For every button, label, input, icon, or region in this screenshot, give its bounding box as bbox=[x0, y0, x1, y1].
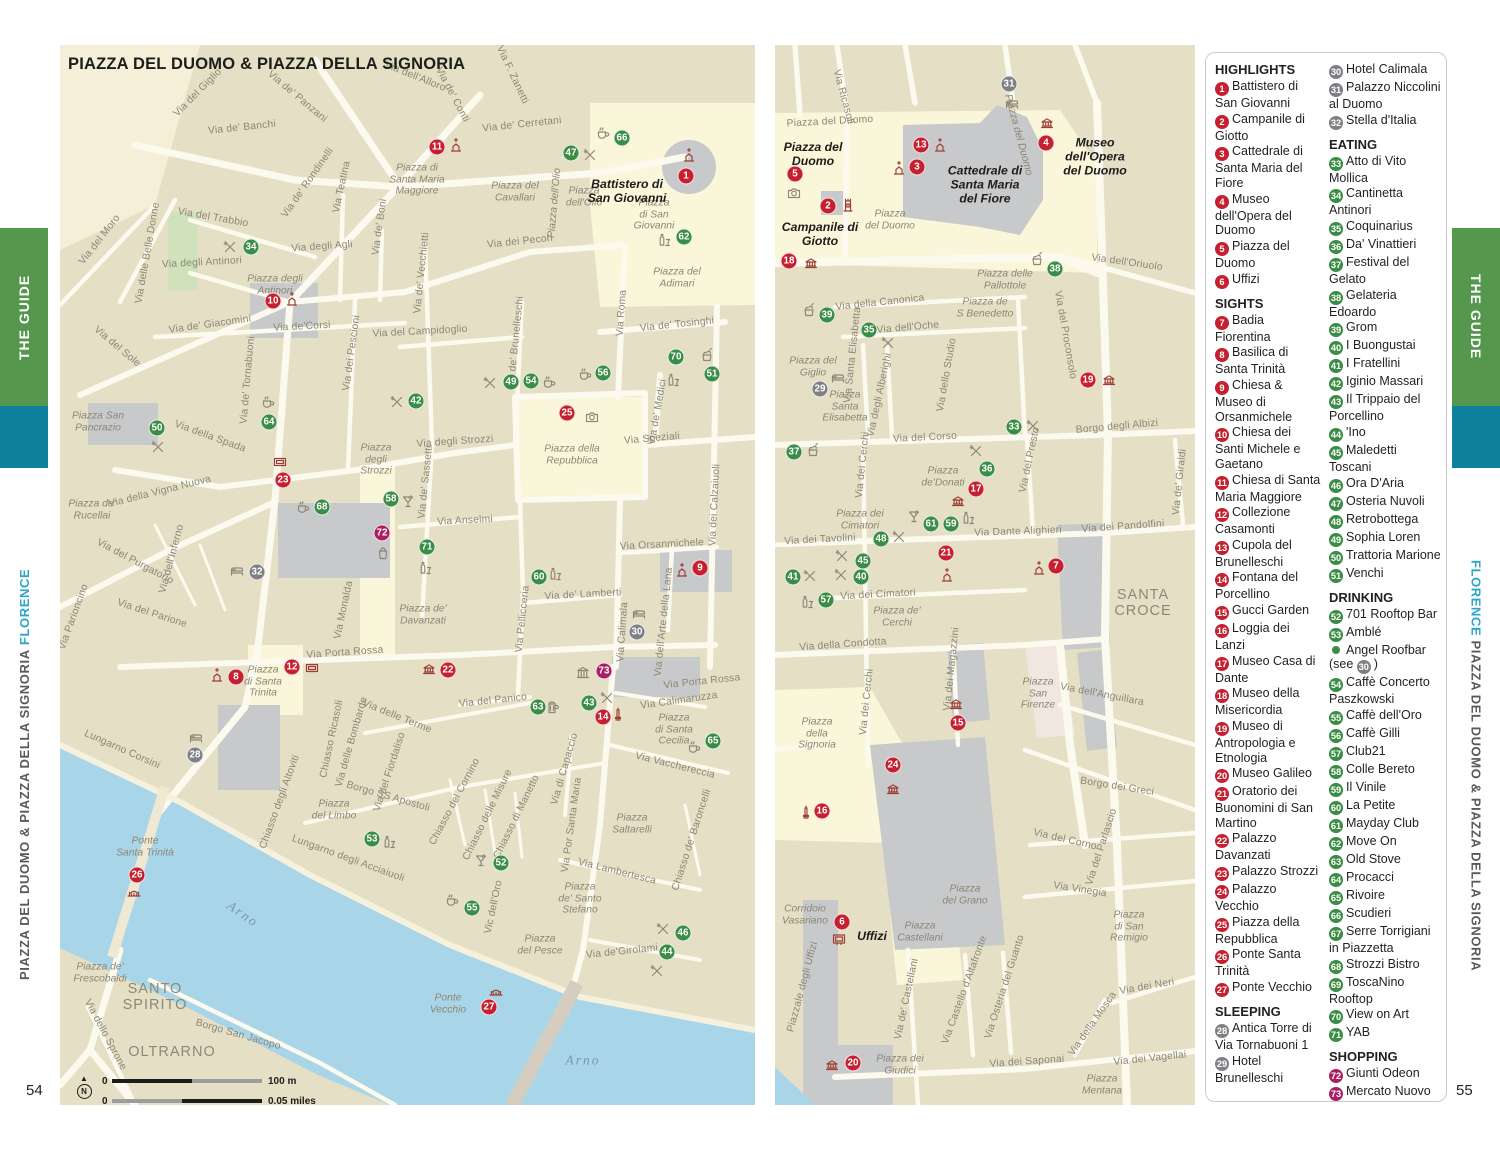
map-marker-46: 46 bbox=[675, 925, 692, 942]
piazza-label: Piazza Castellani bbox=[897, 920, 942, 943]
cafe-icon bbox=[686, 739, 702, 755]
map-marker-31: 31 bbox=[1001, 76, 1018, 93]
restaurant-icon bbox=[833, 567, 849, 583]
legend-badge-12: 12 bbox=[1215, 508, 1229, 522]
map-legend-panel: HIGHLIGHTS1Battistero di San Giovanni2Ca… bbox=[1205, 52, 1447, 1102]
piazza-label: Piazza dei Giudici bbox=[876, 1053, 924, 1076]
piazza-label: Piazza de' Davanzati bbox=[399, 603, 446, 626]
legend-item: 9Chiesa & Museo di Orsanmichele bbox=[1215, 378, 1321, 424]
legend-item: 22Palazzo Davanzati bbox=[1215, 831, 1321, 863]
legend-item: 55Caffè dell'Oro bbox=[1329, 708, 1441, 725]
legend-item: 3Cattedrale di Santa Maria del Fiore bbox=[1215, 144, 1321, 190]
museum-icon bbox=[1101, 371, 1117, 387]
map-marker-56: 56 bbox=[595, 365, 612, 382]
legend-badge-62: 62 bbox=[1329, 837, 1343, 851]
cafe-icon bbox=[541, 374, 557, 390]
map-marker-4: 4 bbox=[1038, 135, 1055, 152]
legend-badge-47: 47 bbox=[1329, 497, 1343, 511]
legend-item: 53Amblé bbox=[1329, 625, 1441, 642]
map-marker-73: 73 bbox=[596, 663, 613, 680]
bed-icon bbox=[1004, 95, 1020, 111]
piazza-label: Piazza delle Pallottole bbox=[977, 268, 1033, 291]
poi-label: Cattedrale di Santa Maria del Fiore bbox=[948, 164, 1022, 205]
legend-badge-15: 15 bbox=[1215, 606, 1229, 620]
legend-dot bbox=[1332, 646, 1340, 654]
legend-badge-39: 39 bbox=[1329, 323, 1343, 337]
map-marker-57: 57 bbox=[818, 592, 835, 609]
river-label: Arno bbox=[566, 1052, 601, 1067]
legend-item: 63Old Stove bbox=[1329, 852, 1441, 869]
legend-item: 46Ora D'Aria bbox=[1329, 476, 1441, 493]
piazza-label: Piazza de'Donati bbox=[921, 465, 964, 488]
restaurant-icon bbox=[222, 239, 238, 255]
bed-icon bbox=[229, 562, 245, 578]
legend-section-title: DRINKING bbox=[1329, 590, 1441, 605]
right-caption-city: FLORENCE bbox=[1469, 560, 1484, 636]
piazza-label: Ponte Vecchio bbox=[430, 992, 466, 1015]
map-marker-48: 48 bbox=[873, 531, 890, 548]
legend-badge-43: 43 bbox=[1329, 395, 1343, 409]
map-marker-22: 22 bbox=[440, 662, 457, 679]
guidebook-map-spread: THE GUIDE PIAZZA DEL DUOMO & PIAZZA DELL… bbox=[0, 0, 1500, 1154]
map-marker-71: 71 bbox=[419, 539, 436, 556]
church-icon bbox=[891, 160, 907, 176]
legend-item: 10Chiesa dei Santi Michele e Gaetano bbox=[1215, 425, 1321, 471]
drink-icon bbox=[417, 560, 433, 576]
beer-icon bbox=[545, 699, 561, 715]
map-marker-38: 38 bbox=[1047, 261, 1064, 278]
legend-item: 57Club21 bbox=[1329, 744, 1441, 761]
legend-item: 26Ponte Santa Trinità bbox=[1215, 947, 1321, 979]
map-marker-27: 27 bbox=[481, 999, 498, 1016]
legend-item: 45Maledetti Toscani bbox=[1329, 443, 1441, 475]
legend-badge-68: 68 bbox=[1329, 960, 1343, 974]
right-guide-label: THE GUIDE bbox=[1452, 228, 1500, 406]
legend-badge-64: 64 bbox=[1329, 873, 1343, 887]
legend-section: 30Hotel Calimala31Palazzo Niccolini al D… bbox=[1329, 62, 1441, 130]
map-marker-5: 5 bbox=[787, 166, 804, 183]
legend-badge-58: 58 bbox=[1329, 765, 1343, 779]
legend-section-sleeping: SLEEPING28Antica Torre di Via Tornabuoni… bbox=[1215, 1004, 1321, 1085]
legend-item: 68Strozzi Bistro bbox=[1329, 957, 1441, 974]
map-marker-64: 64 bbox=[261, 414, 278, 431]
legend-badge-1: 1 bbox=[1215, 82, 1229, 96]
legend-badge-32: 32 bbox=[1329, 116, 1343, 130]
gelato-icon bbox=[805, 442, 821, 458]
museum-icon bbox=[950, 492, 966, 508]
map-marker-61: 61 bbox=[923, 516, 940, 533]
legend-item: 52701 Rooftop Bar bbox=[1329, 607, 1441, 624]
legend-item: 66Scudieri bbox=[1329, 906, 1441, 923]
legend-item: 67Serre Torrigiani in Piazzetta bbox=[1329, 924, 1441, 956]
poi-label: Piazza del Duomo bbox=[784, 141, 843, 169]
legend-item: 58Colle Bereto bbox=[1329, 762, 1441, 779]
map-marker-25: 25 bbox=[559, 405, 576, 422]
map-marker-45: 45 bbox=[855, 553, 872, 570]
legend-item: 65Rivoire bbox=[1329, 888, 1441, 905]
legend-item: 34Cantinetta Antinori bbox=[1329, 186, 1441, 218]
legend-item: 70View on Art bbox=[1329, 1007, 1441, 1024]
bed-icon bbox=[631, 605, 647, 621]
legend-item: 7Badia Fiorentina bbox=[1215, 313, 1321, 345]
legend-badge-4: 4 bbox=[1215, 195, 1229, 209]
map-sheet-title: PIAZZA DEL DUOMO & PIAZZA DELLA SIGNORIA bbox=[68, 55, 465, 74]
legend-badge-7: 7 bbox=[1215, 316, 1229, 330]
piazza-label: Piazza de' Frescobaldi bbox=[73, 961, 126, 984]
piazza-label: Piazza del Pesce bbox=[517, 933, 562, 956]
legend-item: 72Giunti Odeon bbox=[1329, 1066, 1441, 1083]
legend-item: 35Coquinarius bbox=[1329, 219, 1441, 236]
legend-section-drinking: DRINKING52701 Rooftop Bar53AmbléAngel Ro… bbox=[1329, 590, 1441, 1043]
restaurant-icon bbox=[802, 568, 818, 584]
legend-item: 28Antica Torre di Via Tornabuoni 1 bbox=[1215, 1021, 1321, 1053]
legend-item: 54Caffè Concerto Paszkowski bbox=[1329, 675, 1441, 707]
legend-badge-11: 11 bbox=[1215, 476, 1229, 490]
legend-item: Angel Roofbar (see 30) bbox=[1329, 643, 1441, 675]
legend-item: 16Loggia dei Lanzi bbox=[1215, 621, 1321, 653]
restaurant-icon bbox=[389, 394, 405, 410]
legend-badge-9: 9 bbox=[1215, 381, 1229, 395]
map-marker-29: 29 bbox=[812, 381, 829, 398]
map-marker-12: 12 bbox=[284, 659, 301, 676]
church-icon bbox=[932, 137, 948, 153]
legend-badge-25: 25 bbox=[1215, 918, 1229, 932]
legend-badge-70: 70 bbox=[1329, 1010, 1343, 1024]
piazza-label: Piazza del Limbo bbox=[312, 798, 357, 821]
legend-badge-41: 41 bbox=[1329, 359, 1343, 373]
poi-label: Uffizi bbox=[857, 930, 887, 944]
left-caption-city: FLORENCE bbox=[17, 569, 32, 645]
map-marker-62: 62 bbox=[676, 229, 693, 246]
piazza-label: Piazza del Adimari bbox=[653, 266, 701, 289]
church-icon bbox=[284, 291, 300, 307]
legend-item: 39Grom bbox=[1329, 320, 1441, 337]
map-marker-36: 36 bbox=[979, 461, 996, 478]
church-icon bbox=[674, 562, 690, 578]
legend-item: 60La Petite bbox=[1329, 798, 1441, 815]
cafe-icon bbox=[260, 394, 276, 410]
legend-badge-27: 27 bbox=[1215, 983, 1229, 997]
restaurant-icon bbox=[150, 439, 166, 455]
legend-item: 32Stella d'Italia bbox=[1329, 113, 1441, 130]
legend-badge-49: 49 bbox=[1329, 533, 1343, 547]
legend-item: 62Move On bbox=[1329, 834, 1441, 851]
legend-item: 43Il Trippaio del Porcellino bbox=[1329, 392, 1441, 424]
legend-item: 37Festival del Gelato bbox=[1329, 255, 1441, 287]
legend-badge-3: 3 bbox=[1215, 147, 1229, 161]
map-marker-53: 53 bbox=[364, 831, 381, 848]
gelato-icon bbox=[801, 302, 817, 318]
museum-icon bbox=[824, 1056, 840, 1072]
map-marker-68: 68 bbox=[314, 499, 331, 516]
cafe-icon bbox=[295, 499, 311, 515]
scale-metric: 100 m bbox=[268, 1076, 296, 1087]
legend-badge-54: 54 bbox=[1329, 678, 1343, 692]
page-number-left: 54 bbox=[26, 1082, 43, 1099]
museum-icon bbox=[885, 780, 901, 796]
map-marker-24: 24 bbox=[885, 757, 902, 774]
legend-item: 47Osteria Nuvoli bbox=[1329, 494, 1441, 511]
legend-badge-6: 6 bbox=[1215, 275, 1229, 289]
legend-item: 38Gelateria Edoardo bbox=[1329, 288, 1441, 320]
map-marker-3: 3 bbox=[909, 159, 926, 176]
piazza-label: Piazza della Repubblica bbox=[544, 443, 600, 466]
legend-item: 12Collezione Casamonti bbox=[1215, 505, 1321, 537]
legend-item: 27Ponte Vecchio bbox=[1215, 980, 1321, 997]
legend-item: 20Museo Galileo bbox=[1215, 766, 1321, 783]
legend-badge-28: 28 bbox=[1215, 1024, 1229, 1038]
legend-badge-36: 36 bbox=[1329, 240, 1343, 254]
map-page-right: Via RicasoliPiazza del DuomoPiazza del D… bbox=[775, 45, 1195, 1105]
piazza-label: Piazza Santa Elisabetta bbox=[822, 390, 867, 425]
legend-section-eating: EATING33Atto di Vito Mollica34Cantinetta… bbox=[1329, 137, 1441, 583]
piazza-label: Piazza del Cavallari bbox=[491, 180, 539, 203]
legend-badge-67: 67 bbox=[1329, 927, 1343, 941]
legend-section-sights: SIGHTS7Badia Fiorentina8Basilica di Sant… bbox=[1215, 296, 1321, 997]
map-marker-21: 21 bbox=[938, 545, 955, 562]
right-teal-block bbox=[1452, 406, 1500, 468]
legend-badge-59: 59 bbox=[1329, 783, 1343, 797]
legend-item: 50Trattoria Marione bbox=[1329, 548, 1441, 565]
piazza-label: Piazza di San Remigio bbox=[1110, 910, 1148, 945]
map-marker-10: 10 bbox=[265, 293, 282, 310]
piazza-label: Piazza degli Strozzi bbox=[360, 443, 391, 478]
legend-item: 18Museo della Misericordia bbox=[1215, 686, 1321, 718]
legend-item: 19Museo di Antropologia e Etnologia bbox=[1215, 719, 1321, 765]
legend-item: 13Cupola del Brunelleschi bbox=[1215, 538, 1321, 570]
legend-badge-72: 72 bbox=[1329, 1069, 1343, 1083]
cafe-icon bbox=[595, 125, 611, 141]
bed-icon bbox=[188, 729, 204, 745]
district-label: OLTRARNO bbox=[128, 1044, 216, 1060]
legend-badge-31: 31 bbox=[1329, 83, 1343, 97]
restaurant-icon bbox=[968, 443, 984, 459]
map-marker-37: 37 bbox=[786, 444, 803, 461]
legend-column-1: HIGHLIGHTS1Battistero di San Giovanni2Ca… bbox=[1215, 62, 1321, 1093]
legend-badge-20: 20 bbox=[1215, 769, 1229, 783]
legend-badge-14: 14 bbox=[1215, 573, 1229, 587]
legend-badge-65: 65 bbox=[1329, 891, 1343, 905]
restaurant-icon bbox=[482, 375, 498, 391]
legend-section-shopping: SHOPPING72Giunti Odeon73Mercato Nuovo bbox=[1329, 1049, 1441, 1101]
restaurant-icon bbox=[891, 529, 907, 545]
restaurant-icon bbox=[582, 147, 598, 163]
left-guide-label: THE GUIDE bbox=[0, 228, 48, 406]
legend-item: 42Iginio Massari bbox=[1329, 374, 1441, 391]
monument-icon bbox=[610, 707, 626, 723]
frame-icon bbox=[304, 660, 320, 676]
bridge-icon bbox=[488, 983, 504, 999]
church-icon bbox=[939, 567, 955, 583]
legend-item: 25Piazza della Repubblica bbox=[1215, 915, 1321, 947]
legend-item: 15Gucci Garden bbox=[1215, 603, 1321, 620]
scale-imperial: 0.05 miles bbox=[268, 1096, 316, 1106]
bag-icon bbox=[375, 545, 391, 561]
map-marker-52: 52 bbox=[493, 855, 510, 872]
legend-badge-38: 38 bbox=[1329, 291, 1343, 305]
map-marker-14: 14 bbox=[595, 709, 612, 726]
legend-item: 1Battistero di San Giovanni bbox=[1215, 79, 1321, 111]
map-marker-2: 2 bbox=[820, 198, 837, 215]
drink-icon bbox=[547, 566, 563, 582]
legend-item: 56Caffè Gilli bbox=[1329, 726, 1441, 743]
legend-badge-50: 50 bbox=[1329, 551, 1343, 565]
legend-badge-42: 42 bbox=[1329, 377, 1343, 391]
map-marker-54: 54 bbox=[523, 373, 540, 390]
museum-icon bbox=[421, 660, 437, 676]
legend-badge-52: 52 bbox=[1329, 610, 1343, 624]
legend-item: 41I Fratellini bbox=[1329, 356, 1441, 373]
map-marker-18: 18 bbox=[781, 253, 798, 270]
legend-badge-44: 44 bbox=[1329, 428, 1343, 442]
drink-icon bbox=[665, 372, 681, 388]
cocktail-icon bbox=[400, 493, 416, 509]
legend-badge-66: 66 bbox=[1329, 909, 1343, 923]
map-marker-32: 32 bbox=[249, 564, 266, 581]
piazza-label: Ponte Santa Trinità bbox=[116, 835, 174, 858]
legend-badge-30: 30 bbox=[1357, 660, 1371, 674]
map-marker-70: 70 bbox=[668, 349, 685, 366]
legend-badge-19: 19 bbox=[1215, 722, 1229, 736]
legend-badge-5: 5 bbox=[1215, 242, 1229, 256]
legend-item: 6Uffizi bbox=[1215, 272, 1321, 289]
monument-icon bbox=[798, 805, 814, 821]
map-marker-59: 59 bbox=[943, 516, 960, 533]
piazza-label: Piazza della Signoria bbox=[798, 717, 836, 752]
legend-badge-63: 63 bbox=[1329, 855, 1343, 869]
left-caption-main: PIAZZA DEL DUOMO & PIAZZA DELLA SIGNORIA bbox=[17, 649, 32, 980]
map-marker-34: 34 bbox=[243, 239, 260, 256]
legend-item: 71YAB bbox=[1329, 1025, 1441, 1042]
left-edge-caption: PIAZZA DEL DUOMO & PIAZZA DELLA SIGNORIA… bbox=[0, 560, 48, 980]
legend-item: 40I Buongustai bbox=[1329, 338, 1441, 355]
map-marker-60: 60 bbox=[531, 569, 548, 586]
legend-item: 24Palazzo Vecchio bbox=[1215, 882, 1321, 914]
legend-badge-46: 46 bbox=[1329, 479, 1343, 493]
map-marker-28: 28 bbox=[187, 747, 204, 764]
legend-badge-60: 60 bbox=[1329, 801, 1343, 815]
legend-section-title: SIGHTS bbox=[1215, 296, 1321, 311]
church-icon bbox=[1031, 560, 1047, 576]
legend-item: 30Hotel Calimala bbox=[1329, 62, 1441, 79]
cafe-icon bbox=[444, 892, 460, 908]
legend-badge-2: 2 bbox=[1215, 115, 1229, 129]
legend-item: 4Museo dell'Opera del Duomo bbox=[1215, 192, 1321, 238]
legend-section-title: SLEEPING bbox=[1215, 1004, 1321, 1019]
map-marker-7: 7 bbox=[1048, 558, 1065, 575]
map-marker-51: 51 bbox=[704, 366, 721, 383]
legend-badge-18: 18 bbox=[1215, 689, 1229, 703]
legend-item: 17Museo Casa di Dante bbox=[1215, 654, 1321, 686]
legend-item: 5Piazza del Duomo bbox=[1215, 239, 1321, 271]
legend-section-highlights: HIGHLIGHTS1Battistero di San Giovanni2Ca… bbox=[1215, 62, 1321, 289]
legend-badge-10: 10 bbox=[1215, 428, 1229, 442]
tower-icon bbox=[840, 197, 856, 213]
map-marker-1: 1 bbox=[678, 168, 695, 185]
map-marker-6: 6 bbox=[834, 914, 851, 931]
legend-badge-71: 71 bbox=[1329, 1028, 1343, 1042]
legend-item: 44'Ino bbox=[1329, 425, 1441, 442]
map-marker-16: 16 bbox=[814, 803, 831, 820]
map-marker-13: 13 bbox=[913, 137, 930, 154]
piazza-label: Piazza de S Benedetto bbox=[957, 296, 1014, 319]
map-marker-8: 8 bbox=[228, 669, 245, 686]
piazza-label: Piazza San Pancrazio bbox=[72, 410, 124, 433]
legend-badge-33: 33 bbox=[1329, 157, 1343, 171]
map-marker-41: 41 bbox=[785, 569, 802, 586]
legend-item: 69ToscaNino Rooftop bbox=[1329, 975, 1441, 1007]
camera-icon bbox=[584, 409, 600, 425]
legend-badge-16: 16 bbox=[1215, 624, 1229, 638]
map-marker-66: 66 bbox=[614, 130, 631, 147]
map-marker-30: 30 bbox=[629, 624, 646, 641]
poi-label: Campanile di Giotto bbox=[782, 221, 859, 249]
page-number-right: 55 bbox=[1456, 1082, 1473, 1099]
museum-icon bbox=[803, 254, 819, 270]
piazza-label: Piazza de' Cerchi bbox=[873, 605, 920, 628]
legend-badge-29: 29 bbox=[1215, 1057, 1229, 1071]
map-marker-15: 15 bbox=[950, 715, 967, 732]
legend-badge-69: 69 bbox=[1329, 978, 1343, 992]
legend-item: 61Mayday Club bbox=[1329, 816, 1441, 833]
piazza-label: Corridoio Vasariano bbox=[782, 903, 828, 926]
drink-icon bbox=[656, 232, 672, 248]
legend-item: 21Oratorio dei Buonomini di San Martino bbox=[1215, 784, 1321, 830]
legend-badge-55: 55 bbox=[1329, 711, 1343, 725]
legend-column-2: 30Hotel Calimala31Palazzo Niccolini al D… bbox=[1329, 62, 1441, 1093]
legend-badge-34: 34 bbox=[1329, 189, 1343, 203]
map-marker-63: 63 bbox=[530, 699, 547, 716]
map-page-left: PIAZZA DEL DUOMO & PIAZZA DELLA SIGNORIA… bbox=[60, 45, 755, 1105]
legend-badge-45: 45 bbox=[1329, 446, 1343, 460]
map-marker-23: 23 bbox=[275, 472, 292, 489]
restaurant-icon bbox=[880, 335, 896, 351]
church-icon bbox=[209, 667, 225, 683]
legend-badge-40: 40 bbox=[1329, 341, 1343, 355]
map-marker-20: 20 bbox=[845, 1055, 862, 1072]
map-marker-65: 65 bbox=[705, 733, 722, 750]
map-marker-55: 55 bbox=[464, 900, 481, 917]
map-marker-35: 35 bbox=[861, 322, 878, 339]
legend-badge-48: 48 bbox=[1329, 515, 1343, 529]
market-icon bbox=[575, 664, 591, 680]
cocktail-icon bbox=[906, 508, 922, 524]
restaurant-icon bbox=[1025, 418, 1041, 434]
left-guide-bar: THE GUIDE bbox=[0, 228, 48, 406]
gallery-icon bbox=[831, 931, 847, 947]
map-marker-40: 40 bbox=[853, 569, 870, 586]
legend-badge-37: 37 bbox=[1329, 258, 1343, 272]
gelato-icon bbox=[1029, 251, 1045, 267]
drink-icon bbox=[799, 594, 815, 610]
legend-item: 33Atto di Vito Mollica bbox=[1329, 154, 1441, 186]
restaurant-icon bbox=[655, 921, 671, 937]
legend-badge-51: 51 bbox=[1329, 569, 1343, 583]
legend-badge-13: 13 bbox=[1215, 541, 1229, 555]
legend-badge-21: 21 bbox=[1215, 787, 1229, 801]
legend-item: 59Il Vinile bbox=[1329, 780, 1441, 797]
bridge-icon bbox=[126, 884, 142, 900]
map-marker-72: 72 bbox=[374, 525, 391, 542]
cafe-icon bbox=[577, 366, 593, 382]
piazza-label: Piazza di Santa Maria Maggiore bbox=[389, 163, 445, 198]
map-marker-47: 47 bbox=[563, 145, 580, 162]
map-marker-42: 42 bbox=[408, 393, 425, 410]
legend-badge-73: 73 bbox=[1329, 1087, 1343, 1101]
map-marker-26: 26 bbox=[129, 867, 146, 884]
legend-item: 11Chiesa di Santa Maria Maggiore bbox=[1215, 473, 1321, 505]
piazza-label: Piazza dei Cimatori bbox=[836, 508, 884, 531]
